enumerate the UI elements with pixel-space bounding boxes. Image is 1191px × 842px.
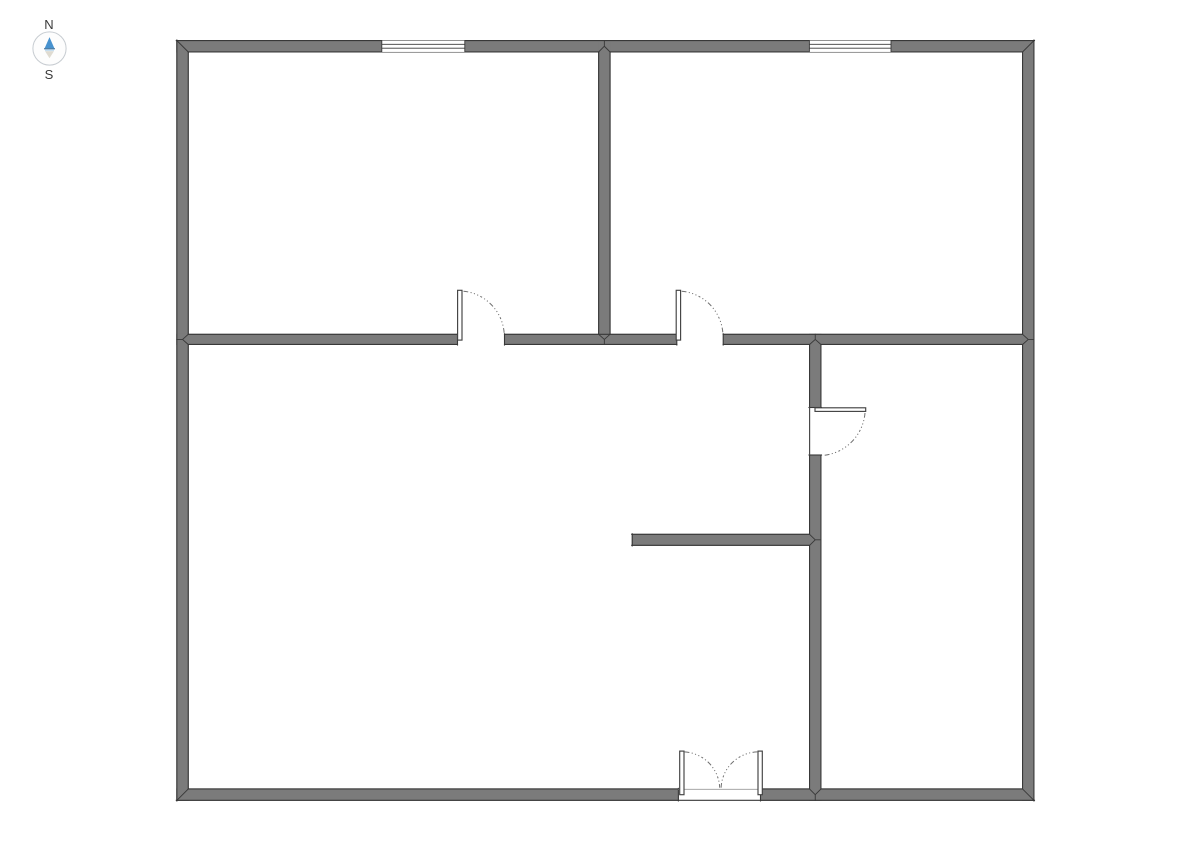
svg-text:S: S: [45, 67, 54, 82]
svg-text:N: N: [44, 17, 53, 32]
